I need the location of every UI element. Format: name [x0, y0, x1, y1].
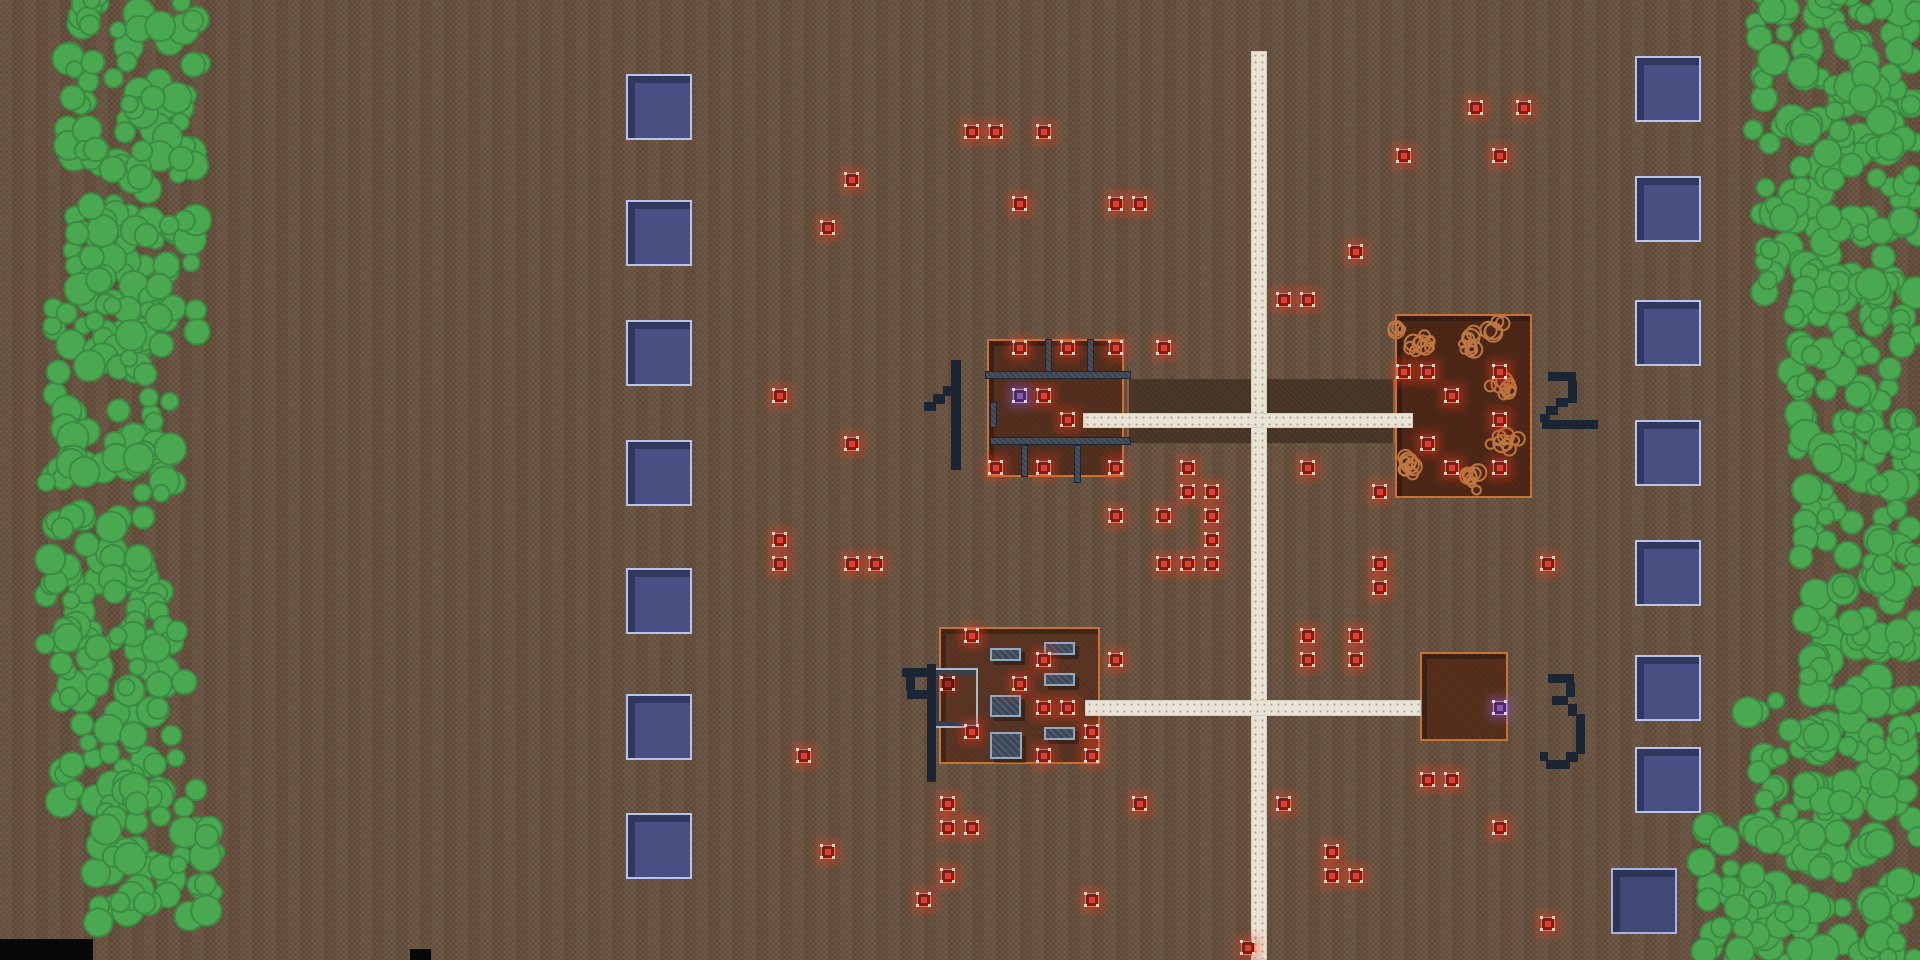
- marker-ticks: [940, 820, 943, 823]
- road-horizontal-upper: [1083, 413, 1413, 428]
- marker-core: [1497, 825, 1503, 831]
- marker-ticks: [1444, 388, 1447, 391]
- marker-core: [849, 177, 855, 183]
- purple-marker[interactable]: [1013, 389, 1027, 403]
- marker-ticks: [1060, 700, 1063, 703]
- red-marker[interactable]: [1037, 389, 1051, 403]
- red-marker[interactable]: [1109, 197, 1123, 211]
- red-marker[interactable]: [989, 125, 1003, 139]
- red-marker[interactable]: [1445, 461, 1459, 475]
- red-marker[interactable]: [941, 821, 955, 835]
- red-marker[interactable]: [1493, 461, 1507, 475]
- marker-ticks: [1492, 460, 1495, 463]
- marker-core: [1065, 417, 1071, 423]
- marker-core: [969, 129, 975, 135]
- marker-ticks: [940, 796, 943, 799]
- marker-ticks: [1012, 388, 1015, 391]
- red-marker[interactable]: [1493, 821, 1507, 835]
- red-marker[interactable]: [989, 461, 1003, 475]
- label-glyph-segment: [906, 677, 915, 691]
- marker-ticks: [1204, 484, 1207, 487]
- marker-core: [1353, 873, 1359, 879]
- red-marker[interactable]: [869, 557, 883, 571]
- label-glyph-segment: [1566, 683, 1575, 697]
- marker-core: [1281, 297, 1287, 303]
- marker-ticks: [1300, 628, 1303, 631]
- red-marker[interactable]: [1037, 701, 1051, 715]
- marker-ticks: [1036, 124, 1039, 127]
- marker-core: [1137, 801, 1143, 807]
- road-vertical: [1251, 51, 1267, 960]
- marker-ticks: [844, 436, 847, 439]
- red-marker[interactable]: [1085, 893, 1099, 907]
- marker-ticks: [1036, 460, 1039, 463]
- marker-core: [1041, 657, 1047, 663]
- marker-ticks: [1300, 652, 1303, 655]
- marker-ticks: [964, 628, 967, 631]
- bottom-bar: [0, 939, 93, 960]
- red-marker[interactable]: [1469, 101, 1483, 115]
- supply-pad-left[interactable]: [626, 74, 692, 140]
- red-marker[interactable]: [1205, 485, 1219, 499]
- marker-ticks: [1396, 364, 1399, 367]
- marker-ticks: [940, 676, 943, 679]
- marker-ticks: [1372, 556, 1375, 559]
- label-glyph-segment: [951, 360, 961, 470]
- red-marker[interactable]: [1181, 485, 1195, 499]
- marker-core: [993, 129, 999, 135]
- label-glyph-segment: [1576, 714, 1585, 754]
- marker-ticks: [1240, 940, 1243, 943]
- red-marker[interactable]: [1445, 773, 1459, 787]
- marker-core: [1161, 561, 1167, 567]
- marker-ticks: [1108, 340, 1111, 343]
- marker-core: [1497, 369, 1503, 375]
- red-marker[interactable]: [1037, 461, 1051, 475]
- marker-core: [1245, 945, 1251, 951]
- marker-core: [945, 681, 951, 687]
- label-glyph-segment: [927, 664, 936, 782]
- red-marker[interactable]: [965, 821, 979, 835]
- marker-ticks: [1132, 196, 1135, 199]
- red-marker[interactable]: [965, 725, 979, 739]
- marker-ticks: [1540, 556, 1543, 559]
- red-marker[interactable]: [845, 557, 859, 571]
- marker-core: [921, 897, 927, 903]
- red-marker[interactable]: [1157, 341, 1171, 355]
- marker-ticks: [1084, 724, 1087, 727]
- red-marker[interactable]: [773, 533, 787, 547]
- red-marker[interactable]: [1397, 149, 1411, 163]
- red-marker[interactable]: [1013, 677, 1027, 691]
- marker-core: [969, 633, 975, 639]
- marker-ticks: [1372, 580, 1375, 583]
- marker-ticks: [1180, 460, 1183, 463]
- marker-core: [945, 801, 951, 807]
- marker-core: [777, 561, 783, 567]
- marker-ticks: [964, 820, 967, 823]
- red-marker[interactable]: [1109, 461, 1123, 475]
- marker-ticks: [772, 556, 775, 559]
- supply-pad-right[interactable]: [1635, 420, 1701, 486]
- red-marker[interactable]: [1109, 509, 1123, 523]
- red-marker[interactable]: [1013, 341, 1027, 355]
- marker-core: [1017, 681, 1023, 687]
- marker-core: [1449, 777, 1455, 783]
- marker-core: [1425, 441, 1431, 447]
- marker-core: [873, 561, 879, 567]
- marker-core: [1305, 633, 1311, 639]
- supply-pad-right[interactable]: [1635, 176, 1701, 242]
- marker-ticks: [1276, 292, 1279, 295]
- supply-pad-right[interactable]: [1635, 300, 1701, 366]
- red-marker[interactable]: [1109, 653, 1123, 667]
- marker-ticks: [1180, 484, 1183, 487]
- marker-ticks: [1276, 796, 1279, 799]
- marker-core: [1113, 657, 1119, 663]
- red-marker[interactable]: [1325, 845, 1339, 859]
- label-glyph-segment: [1546, 760, 1570, 769]
- supply-pad-right[interactable]: [1635, 747, 1701, 813]
- red-marker[interactable]: [1085, 725, 1099, 739]
- red-marker[interactable]: [1133, 797, 1147, 811]
- marker-ticks: [916, 892, 919, 895]
- marker-core: [1065, 705, 1071, 711]
- marker-ticks: [1468, 100, 1471, 103]
- marker-core: [777, 537, 783, 543]
- red-marker[interactable]: [1277, 797, 1291, 811]
- marker-core: [1017, 393, 1023, 399]
- marker-ticks: [1036, 388, 1039, 391]
- marker-core: [1089, 897, 1095, 903]
- marker-ticks: [1420, 436, 1423, 439]
- marker-ticks: [1348, 244, 1351, 247]
- marker-core: [849, 561, 855, 567]
- marker-core: [1545, 561, 1551, 567]
- red-marker[interactable]: [1133, 197, 1147, 211]
- red-marker[interactable]: [1181, 557, 1195, 571]
- red-marker[interactable]: [1205, 533, 1219, 547]
- marker-ticks: [1444, 772, 1447, 775]
- marker-core: [1209, 537, 1215, 543]
- marker-core: [1329, 849, 1335, 855]
- marker-core: [1209, 561, 1215, 567]
- marker-core: [1473, 105, 1479, 111]
- marker-ticks: [1132, 796, 1135, 799]
- marker-core: [777, 393, 783, 399]
- marker-core: [1353, 657, 1359, 663]
- marker-core: [1521, 105, 1527, 111]
- red-marker[interactable]: [1061, 413, 1075, 427]
- red-marker[interactable]: [1517, 101, 1531, 115]
- red-marker[interactable]: [1037, 749, 1051, 763]
- label-glyph-segment: [1552, 696, 1568, 705]
- red-marker[interactable]: [1421, 773, 1435, 787]
- marker-core: [1353, 249, 1359, 255]
- red-marker[interactable]: [1349, 629, 1363, 643]
- supply-pad-right[interactable]: [1635, 540, 1701, 606]
- marker-core: [1353, 633, 1359, 639]
- marker-ticks: [1420, 364, 1423, 367]
- red-marker[interactable]: [1373, 581, 1387, 595]
- marker-ticks: [1300, 460, 1303, 463]
- marker-ticks: [844, 172, 847, 175]
- supply-pad-left[interactable]: [626, 320, 692, 386]
- marker-core: [1425, 777, 1431, 783]
- red-marker[interactable]: [1037, 653, 1051, 667]
- marker-core: [1305, 657, 1311, 663]
- red-marker[interactable]: [1349, 869, 1363, 883]
- red-marker[interactable]: [1301, 461, 1315, 475]
- marker-ticks: [1036, 652, 1039, 655]
- supply-pad-left[interactable]: [626, 813, 692, 879]
- marker-ticks: [1420, 772, 1423, 775]
- marker-core: [1377, 585, 1383, 591]
- marker-ticks: [1084, 748, 1087, 751]
- red-marker[interactable]: [1061, 701, 1075, 715]
- marker-ticks: [988, 460, 991, 463]
- marker-core: [1041, 753, 1047, 759]
- marker-ticks: [1492, 820, 1495, 823]
- label-glyph-segment: [1548, 372, 1576, 381]
- label-glyph-segment: [1542, 420, 1598, 429]
- marker-core: [1209, 489, 1215, 495]
- marker-core: [1401, 153, 1407, 159]
- building-label-3: [1540, 668, 1610, 793]
- red-marker[interactable]: [821, 845, 835, 859]
- red-marker[interactable]: [1493, 365, 1507, 379]
- marker-core: [1497, 465, 1503, 471]
- marker-ticks: [1084, 892, 1087, 895]
- marker-ticks: [868, 556, 871, 559]
- red-marker[interactable]: [1157, 557, 1171, 571]
- marker-core: [1185, 489, 1191, 495]
- marker-core: [1425, 369, 1431, 375]
- marker-ticks: [1156, 556, 1159, 559]
- marker-core: [825, 225, 831, 231]
- red-marker[interactable]: [917, 893, 931, 907]
- marker-core: [1137, 201, 1143, 207]
- marker-ticks: [1324, 844, 1327, 847]
- red-marker[interactable]: [821, 221, 835, 235]
- marker-ticks: [1108, 460, 1111, 463]
- marker-ticks: [820, 844, 823, 847]
- marker-ticks: [796, 748, 799, 751]
- marker-core: [945, 825, 951, 831]
- marker-ticks: [772, 532, 775, 535]
- marker-core: [1449, 393, 1455, 399]
- red-marker[interactable]: [1325, 869, 1339, 883]
- marker-ticks: [844, 556, 847, 559]
- red-marker[interactable]: [1445, 389, 1459, 403]
- red-marker[interactable]: [1061, 341, 1075, 355]
- marker-ticks: [1036, 700, 1039, 703]
- marker-core: [1305, 297, 1311, 303]
- red-marker[interactable]: [773, 389, 787, 403]
- red-marker[interactable]: [1373, 485, 1387, 499]
- marker-core: [849, 441, 855, 447]
- red-marker[interactable]: [965, 629, 979, 643]
- red-marker[interactable]: [1241, 941, 1255, 955]
- marker-core: [825, 849, 831, 855]
- marker-ticks: [1204, 556, 1207, 559]
- red-marker[interactable]: [1205, 509, 1219, 523]
- marker-core: [1185, 561, 1191, 567]
- marker-ticks: [1444, 460, 1447, 463]
- red-marker[interactable]: [845, 173, 859, 187]
- red-marker[interactable]: [1421, 437, 1435, 451]
- red-marker[interactable]: [1397, 365, 1411, 379]
- building-label-4: [898, 662, 968, 787]
- marker-ticks: [964, 124, 967, 127]
- marker-core: [1089, 729, 1095, 735]
- supply-pad-left[interactable]: [626, 568, 692, 634]
- supply-pad-right[interactable]: [1635, 56, 1701, 122]
- building-label-1: [918, 356, 988, 481]
- marker-core: [969, 729, 975, 735]
- marker-core: [1209, 513, 1215, 519]
- red-marker[interactable]: [941, 797, 955, 811]
- red-marker[interactable]: [1013, 197, 1027, 211]
- marker-ticks: [940, 868, 943, 871]
- marker-core: [1089, 753, 1095, 759]
- marker-core: [1377, 489, 1383, 495]
- marker-core: [1545, 921, 1551, 927]
- marker-ticks: [1108, 652, 1111, 655]
- marker-ticks: [1108, 508, 1111, 511]
- red-marker[interactable]: [1421, 365, 1435, 379]
- marker-ticks: [1012, 676, 1015, 679]
- marker-ticks: [1300, 292, 1303, 295]
- marker-core: [1017, 345, 1023, 351]
- marker-core: [1401, 369, 1407, 375]
- red-marker[interactable]: [1541, 557, 1555, 571]
- marker-core: [1329, 873, 1335, 879]
- marker-ticks: [1180, 556, 1183, 559]
- marker-ticks: [1492, 412, 1495, 415]
- marker-core: [1305, 465, 1311, 471]
- marker-ticks: [964, 724, 967, 727]
- marker-ticks: [772, 388, 775, 391]
- road-horizontal-lower: [1085, 700, 1421, 716]
- red-marker[interactable]: [1373, 557, 1387, 571]
- marker-ticks: [1060, 412, 1063, 415]
- marker-ticks: [1348, 652, 1351, 655]
- label-glyph-segment: [1568, 381, 1577, 403]
- marker-ticks: [1012, 340, 1015, 343]
- red-marker[interactable]: [1301, 629, 1315, 643]
- marker-core: [801, 753, 807, 759]
- marker-core: [1497, 705, 1503, 711]
- marker-core: [1449, 465, 1455, 471]
- red-marker[interactable]: [1493, 149, 1507, 163]
- marker-ticks: [1156, 508, 1159, 511]
- marker-core: [1041, 705, 1047, 711]
- red-marker[interactable]: [1205, 557, 1219, 571]
- marker-ticks: [1540, 916, 1543, 919]
- red-marker[interactable]: [773, 557, 787, 571]
- label-glyph-segment: [1548, 674, 1574, 683]
- marker-ticks: [1348, 628, 1351, 631]
- marker-ticks: [1492, 700, 1495, 703]
- marker-ticks: [1060, 340, 1063, 343]
- marker-core: [1161, 513, 1167, 519]
- marker-ticks: [1492, 148, 1495, 151]
- red-marker[interactable]: [1181, 461, 1195, 475]
- building-label-2: [1536, 368, 1606, 493]
- red-marker[interactable]: [1109, 341, 1123, 355]
- marker-core: [1281, 801, 1287, 807]
- marker-core: [945, 873, 951, 879]
- marker-core: [1497, 153, 1503, 159]
- red-marker[interactable]: [1493, 413, 1507, 427]
- supply-pad-left[interactable]: [626, 440, 692, 506]
- red-marker[interactable]: [1085, 749, 1099, 763]
- red-marker[interactable]: [1157, 509, 1171, 523]
- marker-ticks: [1108, 196, 1111, 199]
- red-marker[interactable]: [1349, 245, 1363, 259]
- supply-pad-right[interactable]: [1635, 655, 1701, 721]
- red-marker[interactable]: [965, 125, 979, 139]
- red-marker[interactable]: [1541, 917, 1555, 931]
- marker-ticks: [1204, 508, 1207, 511]
- red-marker[interactable]: [1037, 125, 1051, 139]
- red-marker[interactable]: [845, 437, 859, 451]
- red-marker[interactable]: [1349, 653, 1363, 667]
- red-marker[interactable]: [941, 869, 955, 883]
- marker-core: [1113, 513, 1119, 519]
- supply-pad-left[interactable]: [626, 694, 692, 760]
- marker-ticks: [1324, 868, 1327, 871]
- red-marker[interactable]: [1301, 653, 1315, 667]
- supply-pad-offset[interactable]: [1611, 868, 1677, 934]
- marker-core: [1185, 465, 1191, 471]
- marker-core: [969, 825, 975, 831]
- marker-ticks: [1012, 196, 1015, 199]
- purple-marker[interactable]: [1493, 701, 1507, 715]
- object-layer: [0, 0, 1920, 960]
- marker-ticks: [1204, 532, 1207, 535]
- marker-core: [1113, 201, 1119, 207]
- red-marker[interactable]: [797, 749, 811, 763]
- marker-core: [1041, 465, 1047, 471]
- marker-core: [1161, 345, 1167, 351]
- label-glyph-segment: [1540, 752, 1548, 761]
- marker-core: [1065, 345, 1071, 351]
- red-marker[interactable]: [1277, 293, 1291, 307]
- marker-ticks: [988, 124, 991, 127]
- marker-ticks: [1036, 748, 1039, 751]
- marker-ticks: [1348, 868, 1351, 871]
- marker-core: [1041, 129, 1047, 135]
- marker-core: [993, 465, 999, 471]
- marker-ticks: [820, 220, 823, 223]
- supply-pad-left[interactable]: [626, 200, 692, 266]
- marker-core: [1377, 561, 1383, 567]
- marker-core: [1113, 345, 1119, 351]
- marker-ticks: [1396, 148, 1399, 151]
- bottom-bar: [410, 949, 431, 960]
- marker-ticks: [1156, 340, 1159, 343]
- game-map: [0, 0, 1920, 960]
- marker-core: [1041, 393, 1047, 399]
- red-marker[interactable]: [1301, 293, 1315, 307]
- darkred-marker[interactable]: [941, 677, 955, 691]
- marker-core: [1113, 465, 1119, 471]
- label-glyph-segment: [924, 402, 936, 411]
- marker-core: [1497, 417, 1503, 423]
- marker-ticks: [1492, 364, 1495, 367]
